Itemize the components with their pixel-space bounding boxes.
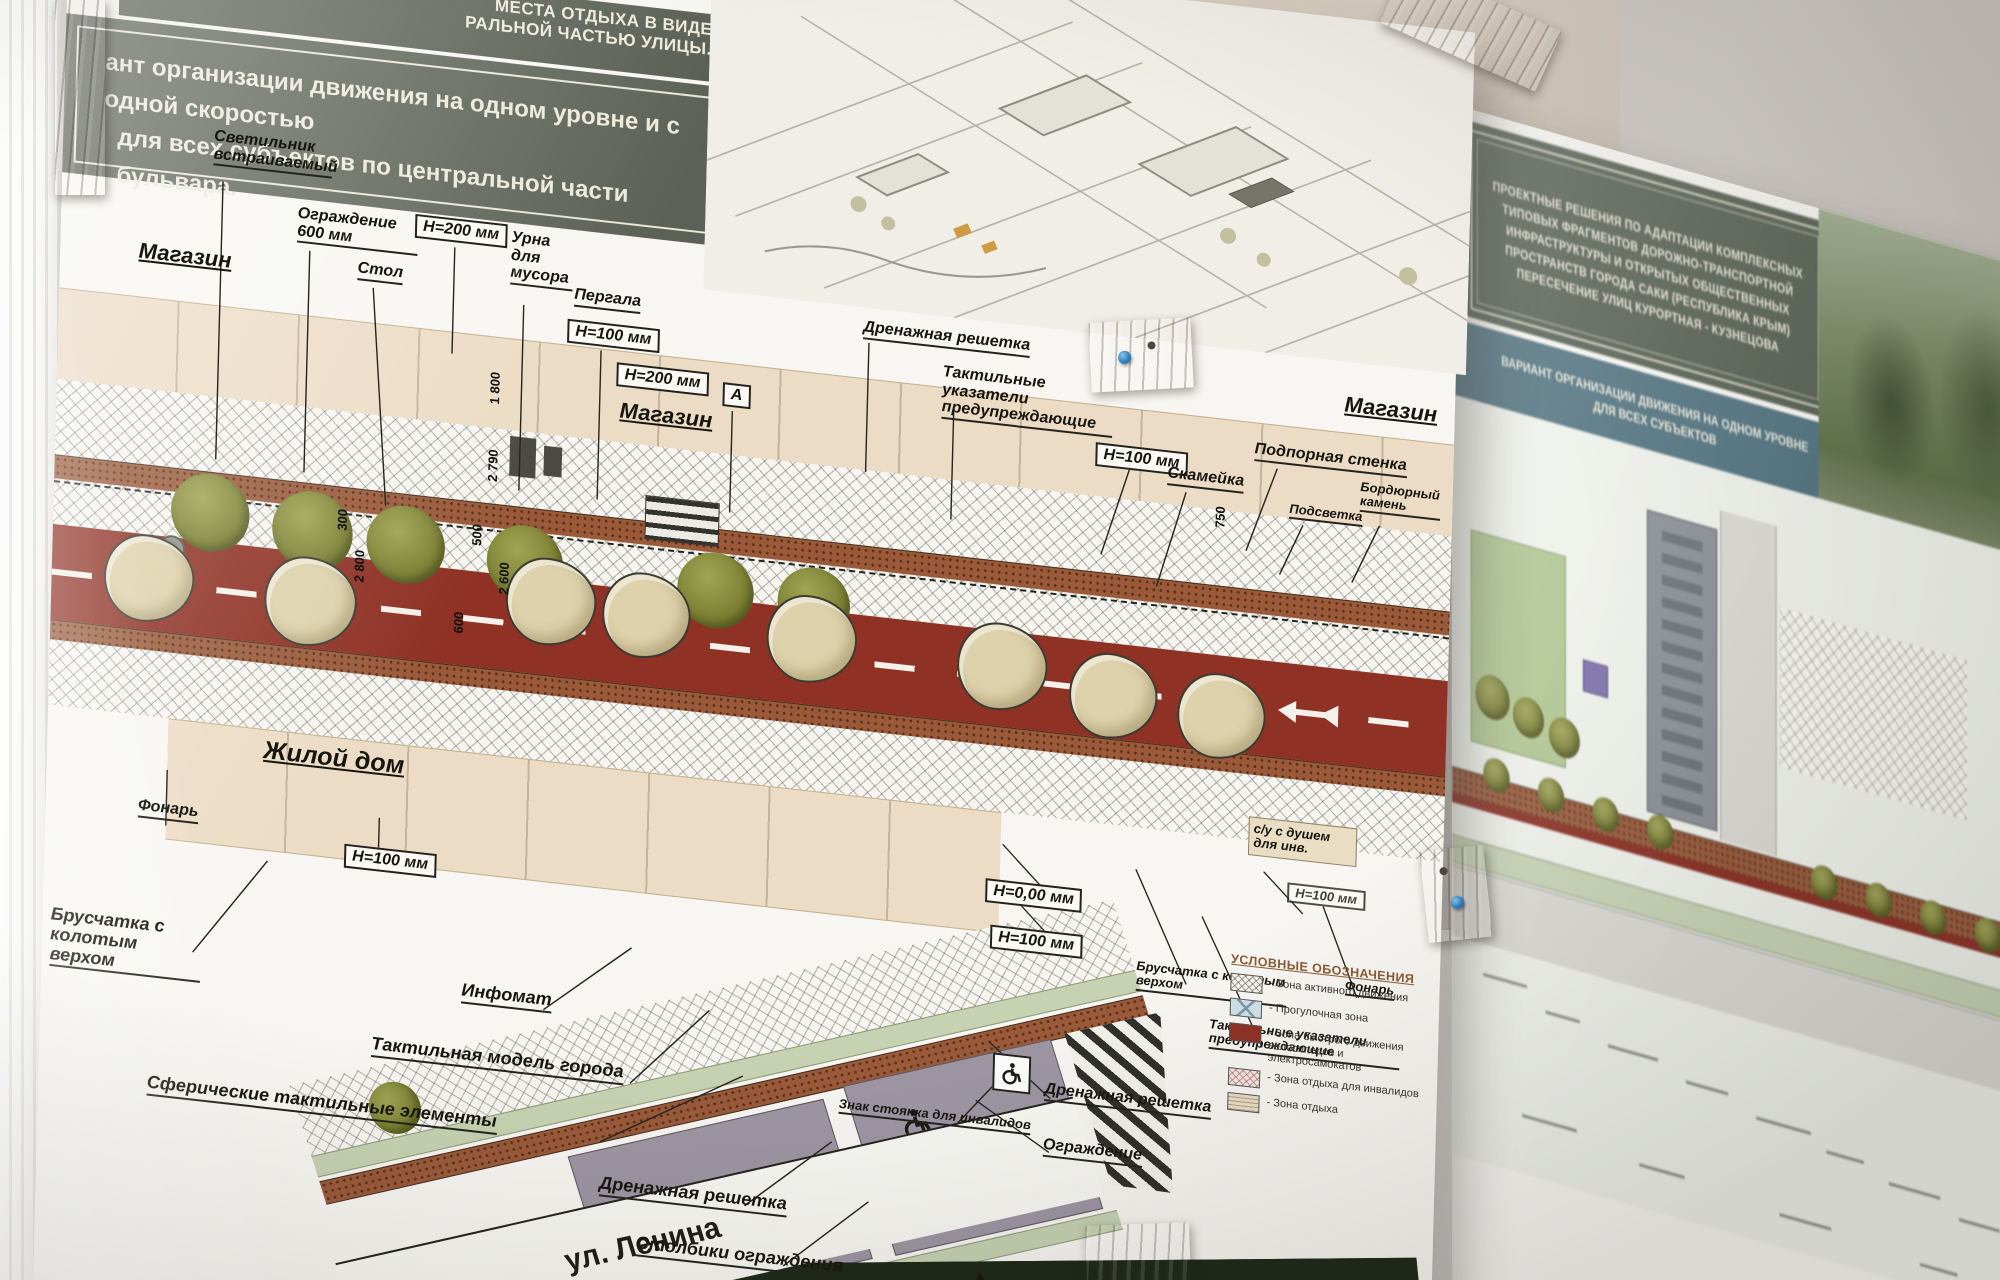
dim-2600: 2 600 xyxy=(496,561,512,595)
legend-swatch-rest-zone xyxy=(1227,1092,1260,1114)
wood-rail-right xyxy=(1419,845,1492,943)
label-bin: Урна для мусора xyxy=(510,229,574,291)
dim-600: 600 xyxy=(451,611,467,634)
label-infomat: Инфомат xyxy=(461,981,552,1014)
pushpin-blue xyxy=(1118,351,1132,365)
wood-rail-mid xyxy=(1088,317,1194,392)
legend-swatch-rest-disabled-zone xyxy=(1228,1067,1261,1089)
legend-label: - Прогулочная зона xyxy=(1269,1002,1368,1026)
axonometric-illustration xyxy=(703,0,1475,375)
stairs-crossing xyxy=(644,495,719,547)
wheelchair-icon xyxy=(999,1060,1024,1087)
pushpin-dark xyxy=(1439,867,1448,876)
disabled-parking-sign xyxy=(992,1052,1031,1094)
dim-750: 750 xyxy=(1212,506,1228,529)
dim-2800: 2 800 xyxy=(351,549,367,583)
label-drain-1: Дренажная решетка xyxy=(863,318,1030,357)
label-pavers-1: Брусчатка с колотым верхом xyxy=(49,904,201,983)
label-pergola: Пергала xyxy=(574,286,641,314)
legend-swatch-walking-zone xyxy=(1230,997,1263,1019)
legend: УСЛОВНЫЕ ОБОЗНАЧЕНИЯ - Зона активного дв… xyxy=(1227,952,1437,1140)
legend-label: - Зона отдыха xyxy=(1266,1096,1338,1117)
dim-300: 300 xyxy=(335,508,351,531)
exhibition-photo: МЕСТА ОТДЫХА В ВИДЕ РАЛЬНОЙ ЧАСТЬЮ УЛИЦЫ… xyxy=(0,0,2000,1280)
wood-post-top-left xyxy=(55,0,105,195)
legend-swatch-fast-zone xyxy=(1229,1022,1262,1044)
glare-overlay xyxy=(1452,104,2000,1280)
label-shop-1: Магазин xyxy=(138,239,231,273)
pushpin-blue xyxy=(1450,895,1464,909)
road-arrow xyxy=(1267,698,1297,723)
street-furniture xyxy=(509,436,536,479)
pushpin-dark xyxy=(1147,341,1155,349)
wood-rail-bottom xyxy=(1085,1222,1191,1280)
street-furniture xyxy=(543,446,562,478)
label-h100-5: Н=100 мм xyxy=(1287,882,1365,911)
label-h0: Н=0,00 мм xyxy=(985,878,1082,912)
right-poster-board: ПРОЕКТНЫЕ РЕШЕНИЯ ПО АДАПТАЦИИ КОМПЛЕКСН… xyxy=(1452,104,2000,1280)
label-table: Стол xyxy=(357,259,403,285)
legend-swatch-active-zone xyxy=(1230,973,1263,995)
left-poster-board: МЕСТА ОТДЫХА В ВИДЕ РАЛЬНОЙ ЧАСТЬЮ УЛИЦЫ… xyxy=(27,0,1464,1280)
section-marker-a: А xyxy=(722,382,750,409)
road-arrow xyxy=(1309,702,1339,727)
label-shop-3: Магазин xyxy=(1344,393,1437,427)
dim-2790: 2 790 xyxy=(485,449,501,483)
dim-500: 500 xyxy=(469,523,485,546)
dim-1800: 1 800 xyxy=(487,371,503,405)
arrow-head xyxy=(967,1260,993,1280)
